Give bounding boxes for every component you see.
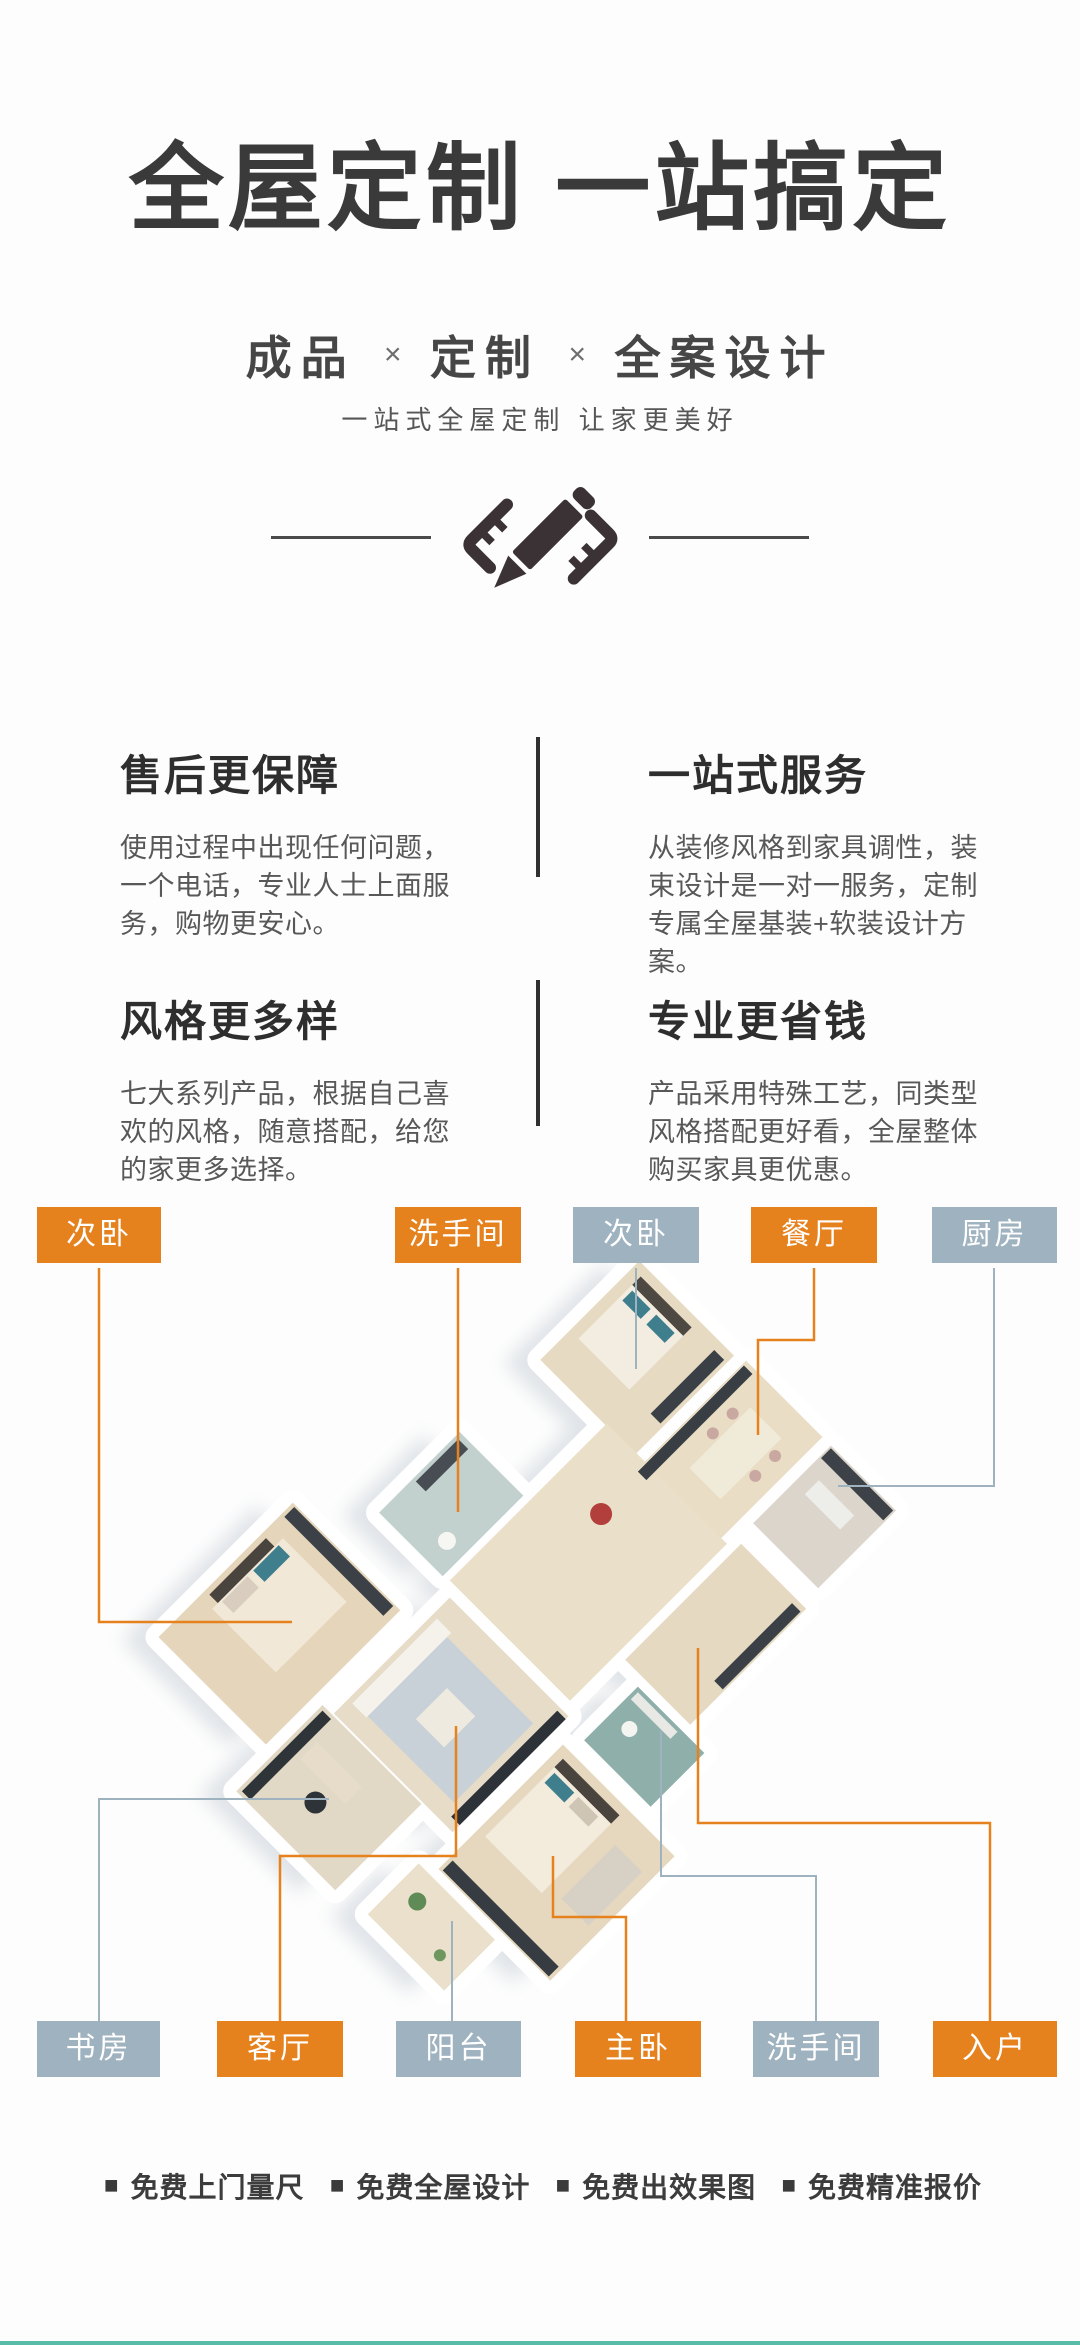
hero-tagline: 一站式全屋定制 让家更美好 [0, 400, 1080, 437]
subtitle-part: 成品 [246, 332, 356, 384]
room-label-kitchen: 厨房 [932, 1207, 1057, 1263]
room-label-dining-room: 餐厅 [751, 1207, 877, 1263]
feature-title: 售后更保障 [120, 742, 458, 803]
services-row: ■ 免费上门量尺 ■ 免费全屋设计 ■ 免费出效果图 ■ 免费精准报价 [104, 2166, 982, 2206]
feature-body: 产品采用特殊工艺，同类型风格搭配更好看，全屋整体购买家具更优惠。 [648, 1075, 990, 1189]
feature-body: 使用过程中出现任何问题，一个电话，专业人士上面服务，购物更安心。 [120, 829, 458, 943]
feature-body: 七大系列产品，根据自己喜欢的风格，随意搭配，给您的家更多选择。 [120, 1075, 458, 1189]
square-bullet-icon: ■ [781, 2174, 796, 2198]
room-label-secondary-bedroom-2: 次卧 [573, 1207, 699, 1263]
room-label-master-bedroom: 主卧 [575, 2021, 701, 2077]
feature-card-savings: 专业更省钱 产品采用特殊工艺，同类型风格搭配更好看，全屋整体购买家具更优惠。 [648, 988, 990, 1189]
bottom-accent-bar [0, 2341, 1080, 2345]
service-label: 免费全屋设计 [356, 2166, 530, 2206]
square-bullet-icon: ■ [104, 2174, 119, 2198]
service-item-design: ■ 免费全屋设计 [330, 2166, 531, 2206]
feature-body: 从装修风格到家具调性，装束设计是一对一服务，定制专属全屋基装+软装设计方案。 [648, 829, 990, 981]
service-label: 免费精准报价 [808, 2166, 982, 2206]
multiply-separator: × [384, 338, 402, 371]
service-item-render: ■ 免费出效果图 [556, 2166, 757, 2206]
room-label-study: 书房 [37, 2021, 160, 2077]
feature-title: 专业更省钱 [648, 988, 990, 1049]
feature-divider [536, 737, 540, 877]
square-bullet-icon: ■ [330, 2174, 345, 2198]
room-label-balcony: 阳台 [396, 2021, 521, 2077]
subtitle-part: 全案设计 [614, 332, 834, 384]
room-label-living-room: 客厅 [217, 2021, 343, 2077]
feature-card-aftersales: 售后更保障 使用过程中出现任何问题，一个电话，专业人士上面服务，购物更安心。 [120, 742, 458, 943]
room-label-bathroom-2: 洗手间 [753, 2021, 879, 2077]
pencil-ruler-icon [462, 462, 620, 620]
subtitle-part: 定制 [430, 332, 540, 384]
promo-page: 全屋定制 一站搞定 成品 × 定制 × 全案设计 一站式全屋定制 让家更美好 售… [0, 0, 1080, 2345]
divider-line-right [649, 536, 809, 539]
room-label-secondary-bedroom-1: 次卧 [37, 1207, 161, 1263]
floorplan-image [0, 1200, 1080, 2060]
feature-title: 一站式服务 [648, 742, 990, 803]
service-item-quote: ■ 免费精准报价 [781, 2166, 982, 2206]
hero-subtitle: 成品 × 定制 × 全案设计 [0, 322, 1080, 388]
feature-card-onestop: 一站式服务 从装修风格到家具调性，装束设计是一对一服务，定制专属全屋基装+软装设… [648, 742, 990, 981]
square-bullet-icon: ■ [556, 2174, 571, 2198]
feature-card-styles: 风格更多样 七大系列产品，根据自己喜欢的风格，随意搭配，给您的家更多选择。 [120, 988, 458, 1189]
room-label-entrance: 入户 [933, 2021, 1057, 2077]
room-label-bathroom-1: 洗手间 [395, 1207, 521, 1263]
feature-divider [536, 980, 540, 1126]
multiply-separator: × [568, 338, 586, 371]
service-label: 免费上门量尺 [131, 2166, 305, 2206]
divider-line-left [271, 536, 431, 539]
service-label: 免费出效果图 [582, 2166, 756, 2206]
service-item-measure: ■ 免费上门量尺 [104, 2166, 305, 2206]
feature-title: 风格更多样 [120, 988, 458, 1049]
page-title: 全屋定制 一站搞定 [0, 112, 1080, 249]
